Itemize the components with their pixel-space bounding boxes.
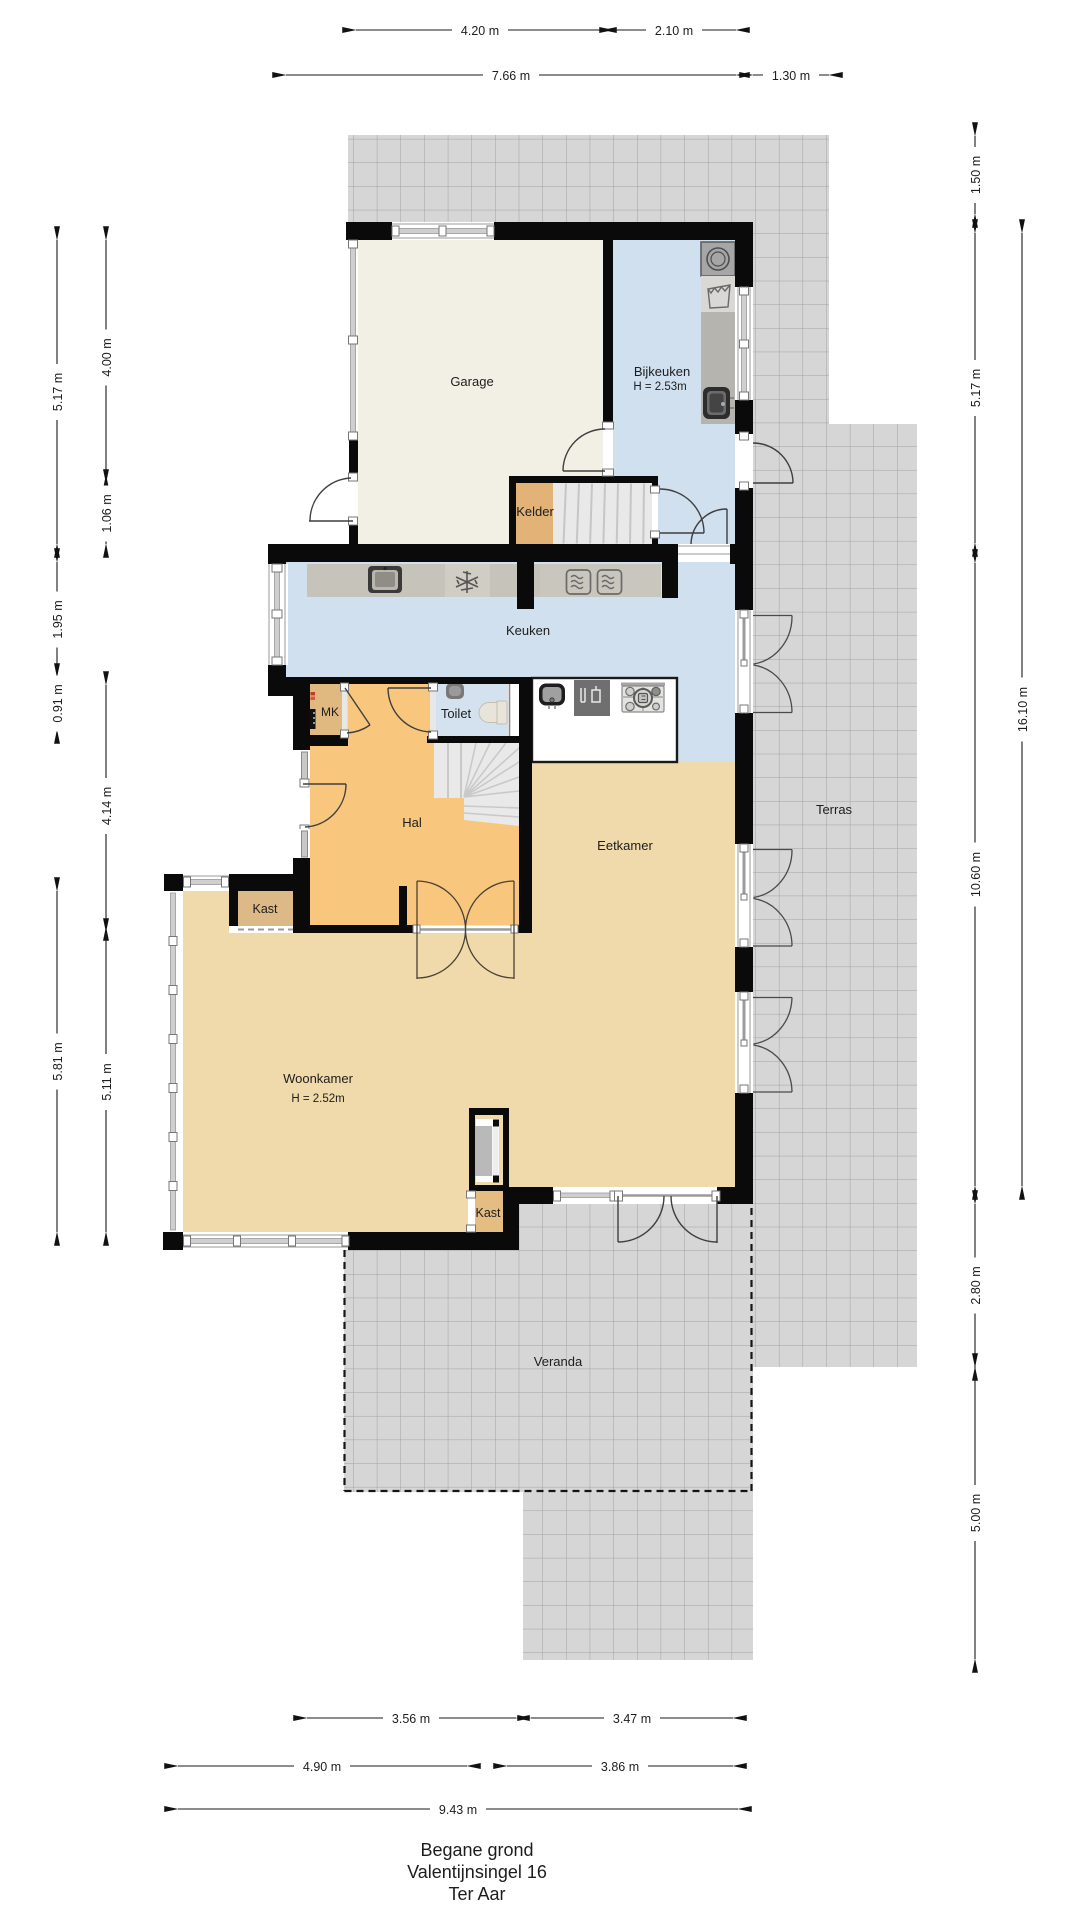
svg-text:4.00 m: 4.00 m xyxy=(100,338,114,376)
svg-text:4.90 m: 4.90 m xyxy=(303,1760,341,1774)
svg-text:Hal: Hal xyxy=(402,815,422,830)
svg-text:16.10 m: 16.10 m xyxy=(1016,687,1030,732)
svg-text:3.86 m: 3.86 m xyxy=(601,1760,639,1774)
svg-text:4.20 m: 4.20 m xyxy=(461,24,499,38)
svg-text:5.00 m: 5.00 m xyxy=(969,1494,983,1532)
svg-text:1.30 m: 1.30 m xyxy=(772,69,810,83)
svg-text:5.11 m: 5.11 m xyxy=(100,1063,114,1100)
svg-text:H = 2.52m: H = 2.52m xyxy=(291,1093,344,1105)
svg-text:1.50 m: 1.50 m xyxy=(969,156,983,194)
svg-text:3.47 m: 3.47 m xyxy=(613,1712,651,1726)
svg-text:Toilet: Toilet xyxy=(441,706,472,721)
svg-text:Valentijnsingel 16: Valentijnsingel 16 xyxy=(407,1862,547,1882)
svg-text:5.17 m: 5.17 m xyxy=(51,373,65,411)
svg-text:Woonkamer: Woonkamer xyxy=(283,1071,354,1086)
svg-text:1.06 m: 1.06 m xyxy=(100,494,114,532)
svg-text:5.81 m: 5.81 m xyxy=(51,1042,65,1080)
svg-text:10.60 m: 10.60 m xyxy=(969,852,983,897)
svg-text:2.10 m: 2.10 m xyxy=(655,24,693,38)
svg-text:4.14 m: 4.14 m xyxy=(100,787,114,825)
svg-text:0.91 m: 0.91 m xyxy=(51,684,65,722)
svg-text:Begane grond: Begane grond xyxy=(420,1840,533,1860)
svg-text:Terras: Terras xyxy=(816,802,853,817)
svg-text:Keuken: Keuken xyxy=(506,623,550,638)
svg-text:2.80 m: 2.80 m xyxy=(969,1266,983,1304)
svg-text:Veranda: Veranda xyxy=(534,1354,583,1369)
svg-text:MK: MK xyxy=(321,705,339,719)
svg-text:Kast: Kast xyxy=(252,902,278,916)
svg-text:Eetkamer: Eetkamer xyxy=(597,838,653,853)
svg-text:Bijkeuken: Bijkeuken xyxy=(634,364,690,379)
svg-text:H = 2.53m: H = 2.53m xyxy=(633,381,686,393)
svg-text:3.56 m: 3.56 m xyxy=(392,1712,430,1726)
svg-text:Kast: Kast xyxy=(475,1206,501,1220)
svg-text:1.95 m: 1.95 m xyxy=(51,600,65,638)
svg-text:9.43 m: 9.43 m xyxy=(439,1803,477,1817)
svg-text:7.66 m: 7.66 m xyxy=(492,69,530,83)
svg-text:Kelder: Kelder xyxy=(516,504,554,519)
svg-text:Ter Aar: Ter Aar xyxy=(448,1884,505,1904)
svg-text:Garage: Garage xyxy=(450,374,493,389)
svg-text:5.17 m: 5.17 m xyxy=(969,369,983,407)
